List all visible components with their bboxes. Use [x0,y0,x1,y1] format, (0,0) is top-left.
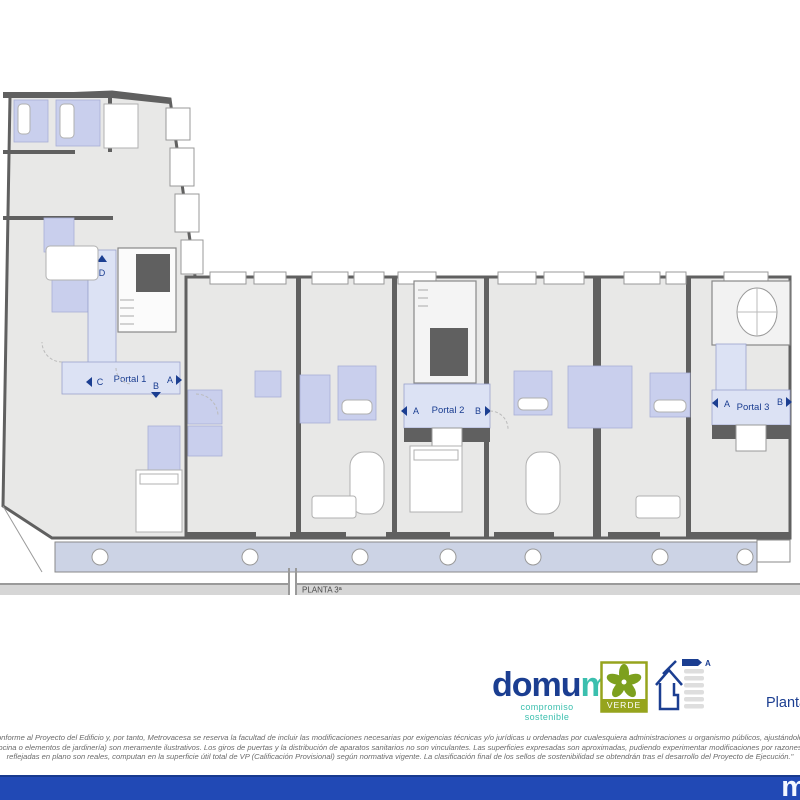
energy-rating-arrow-icon [682,659,702,666]
portal-1-unit-b-label: B [153,381,159,391]
disclaimer-line-2: en la zona de la cocina o elementos de j… [0,743,800,753]
energy-house-icon: A [648,657,712,715]
energy-rating-label: A [705,659,711,668]
domum-logo: domum [492,666,610,705]
disclaimer: sido elaborado conforme al Proyecto del … [0,733,800,762]
portal-1-unit-a-label: A [167,375,173,385]
portal-1-name: Portal 1 [114,374,147,385]
verde-label: VERDE [607,700,641,710]
disclaimer-line-1: sido elaborado conforme al Proyecto del … [0,733,800,743]
portal-2-unit-b-label: B [475,406,481,416]
disclaimer-line-3: reflejadas en plano son reales, computan… [0,752,800,762]
domum-tagline: compromiso sostenible [497,702,597,722]
domum-wordmark-main: domu [492,666,581,704]
planta-band-label: PLANTA 3ª [302,586,342,595]
bottom-bar-m: m [781,771,800,800]
energy-scale-bars [684,669,704,709]
portal-3-unit-b-label: B [777,397,783,407]
portal-3-name: Portal 3 [737,402,770,413]
floor-plan: D C Portal 1 B A A Portal 2 B [0,0,800,620]
window-band [166,108,768,284]
bottom-bar: m [0,775,800,800]
verde-badge: VERDE [600,661,648,713]
sheet-title: Planta 3ª [766,695,800,711]
plan-sheet-page: D C Portal 1 B A A Portal 2 B [0,0,800,800]
portal-2-name: Portal 2 [432,405,465,416]
portal-3-unit-a-label: A [724,399,730,409]
unit-d-label: D [99,268,106,278]
portal-1-unit-c-label: C [97,377,104,387]
portal-2-unit-a-label: A [413,406,419,416]
house-outline [656,661,682,709]
